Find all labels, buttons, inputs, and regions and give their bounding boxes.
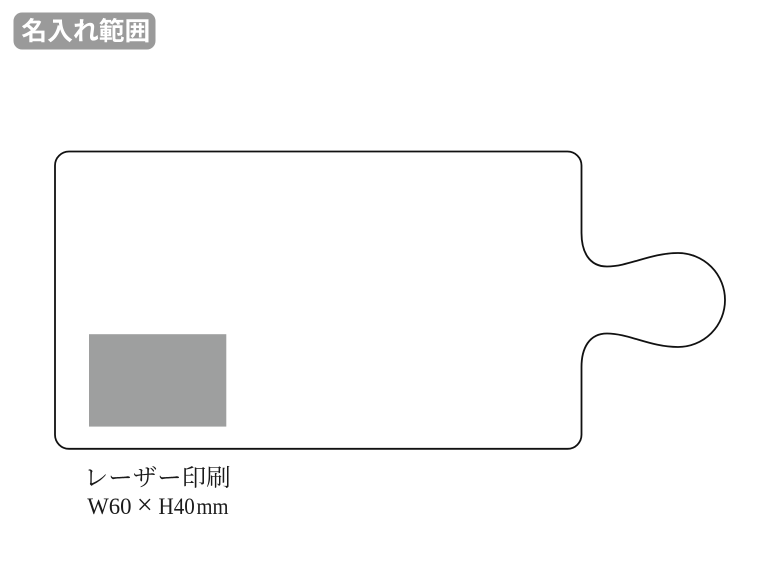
svg-text:W60: W60 xyxy=(87,494,131,519)
svg-text:mm: mm xyxy=(197,494,229,519)
svg-text:H40: H40 xyxy=(159,494,195,519)
svg-text:×: × xyxy=(137,490,153,521)
